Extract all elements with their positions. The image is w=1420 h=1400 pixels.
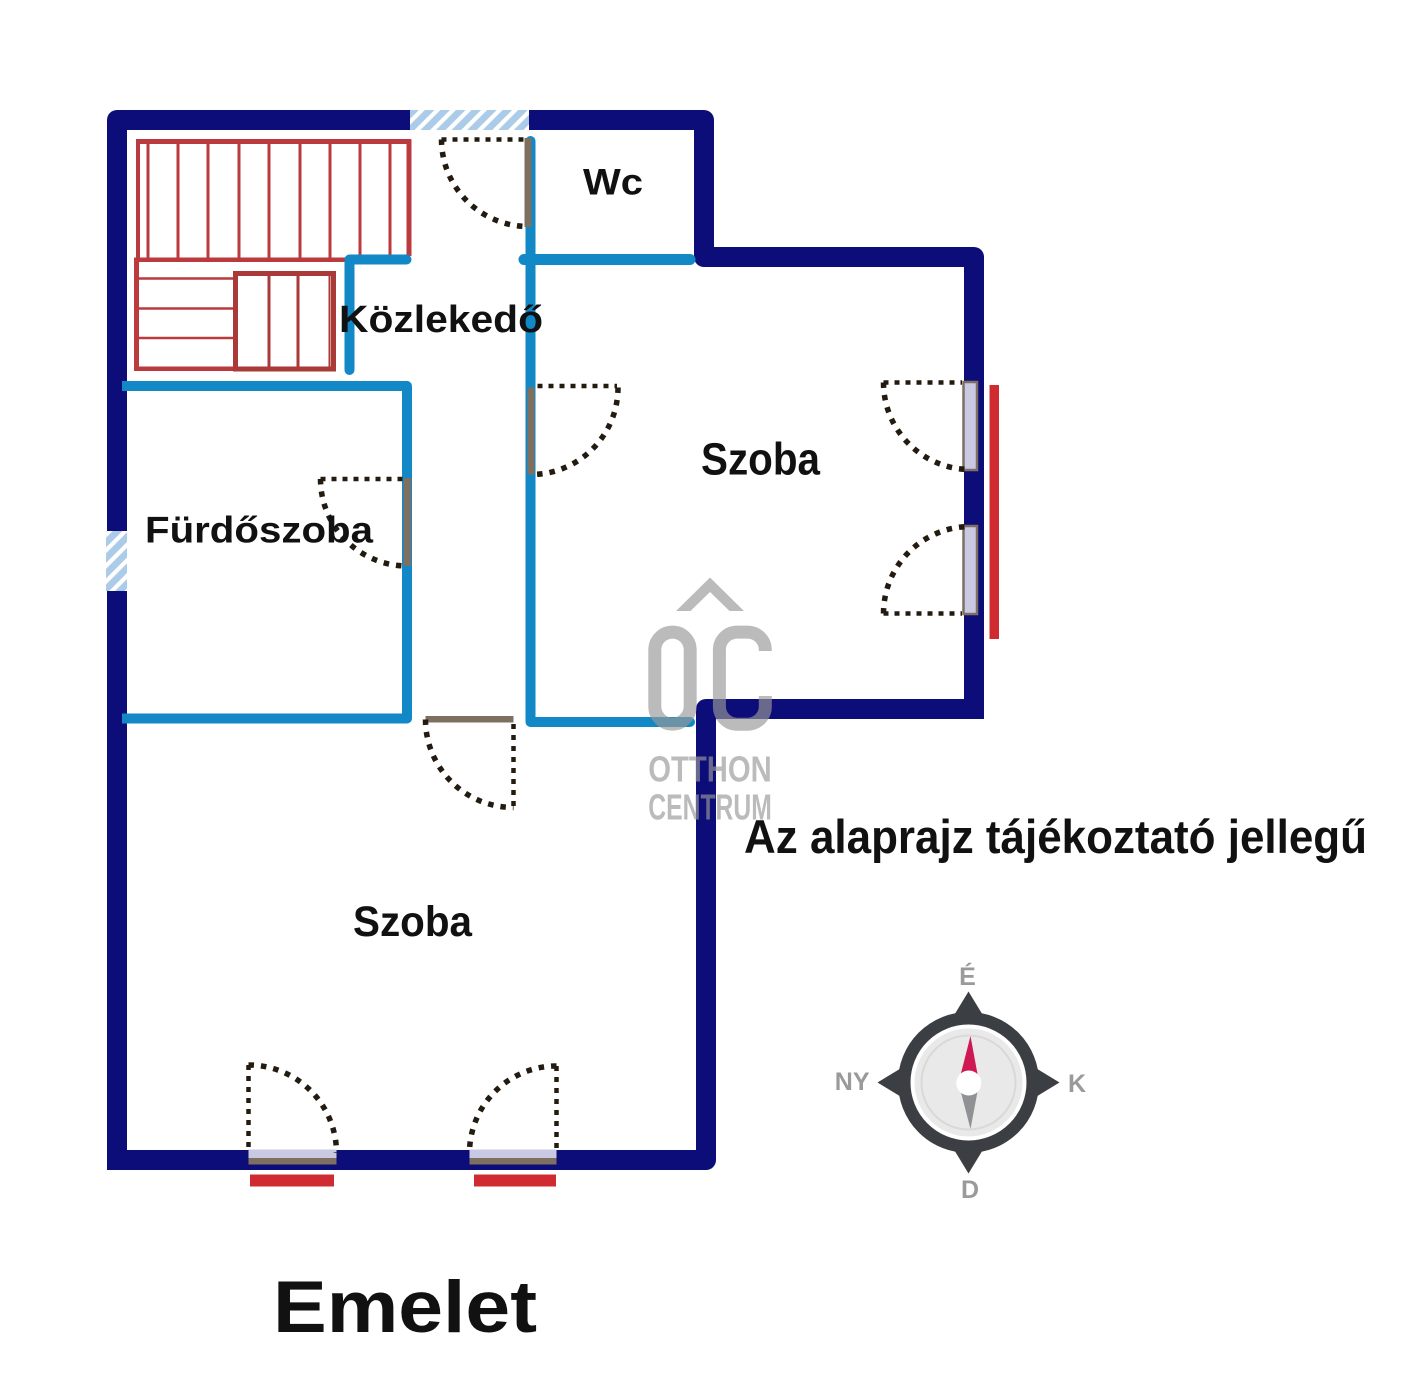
svg-text:Wc: Wc xyxy=(583,162,643,203)
svg-text:Emelet: Emelet xyxy=(273,1267,537,1348)
svg-text:Szoba: Szoba xyxy=(353,898,473,946)
svg-text:Az alaprajz tájékoztató jelleg: Az alaprajz tájékoztató jellegű xyxy=(744,810,1367,863)
svg-text:K: K xyxy=(1068,1070,1086,1098)
svg-text:Fürdőszoba: Fürdőszoba xyxy=(145,510,373,551)
svg-text:NY: NY xyxy=(835,1068,870,1096)
svg-text:Szoba: Szoba xyxy=(701,434,821,485)
svg-text:D: D xyxy=(961,1176,979,1204)
svg-text:Közlekedő: Közlekedő xyxy=(339,299,543,341)
svg-text:OTTHON: OTTHON xyxy=(648,749,772,790)
svg-text:É: É xyxy=(959,962,976,991)
